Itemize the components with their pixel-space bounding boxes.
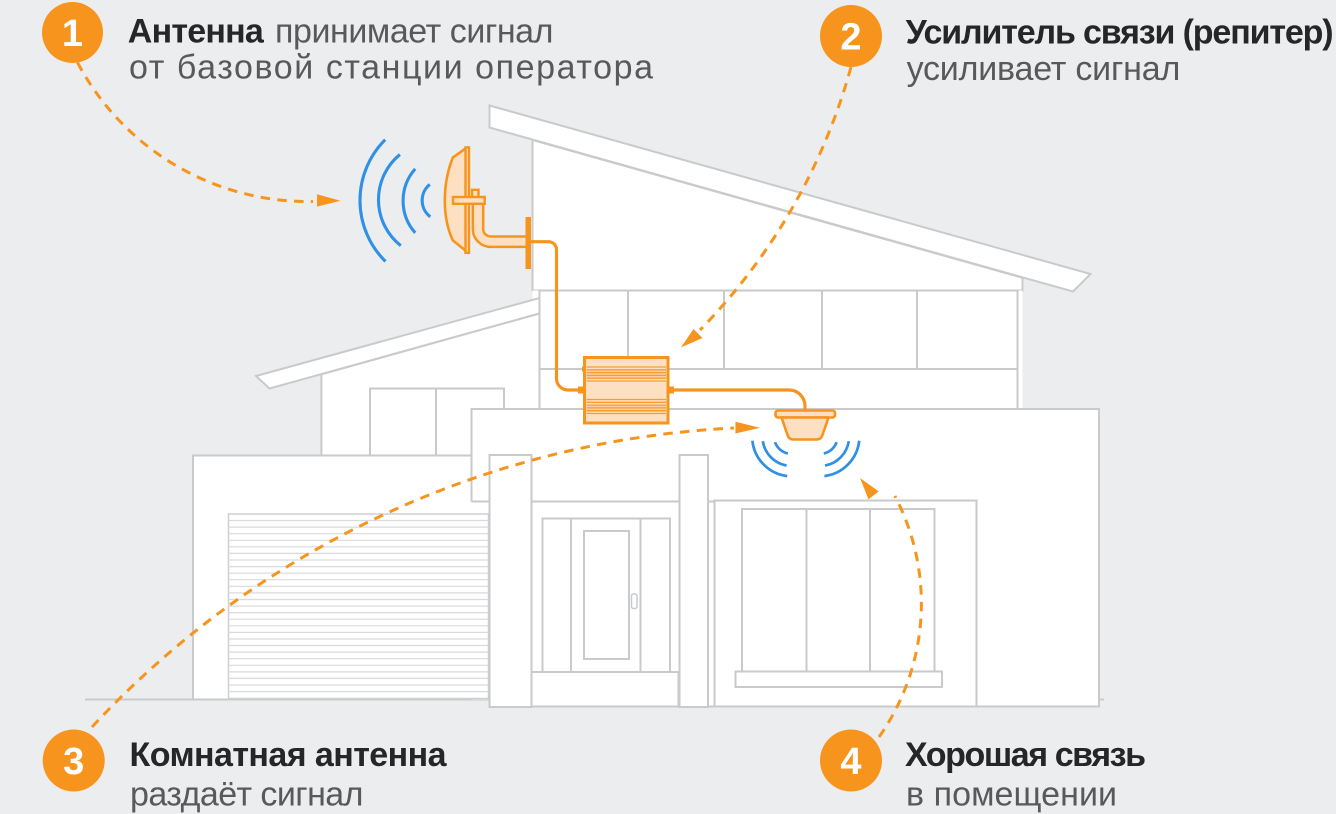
svg-text:1: 1 [62,13,83,55]
svg-text:Комнатная антенна: Комнатная антенна [130,736,448,774]
svg-text:Хорошая связь: Хорошая связь [905,736,1146,774]
svg-text:3: 3 [63,741,84,783]
svg-text:в помещении: в помещении [906,776,1117,814]
svg-text:2: 2 [840,17,861,59]
svg-text:Усилитель связи (репитер): Усилитель связи (репитер) [906,14,1334,52]
svg-text:Антеннапринимает сигнал: Антеннапринимает сигнал [128,13,554,51]
svg-text:4: 4 [840,741,861,783]
svg-text:усиливает сигнал: усиливает сигнал [907,50,1181,88]
svg-text:раздаёт сигнал: раздаёт сигнал [130,776,364,814]
svg-text:от базовой станции оператора: от базовой станции оператора [129,49,653,87]
